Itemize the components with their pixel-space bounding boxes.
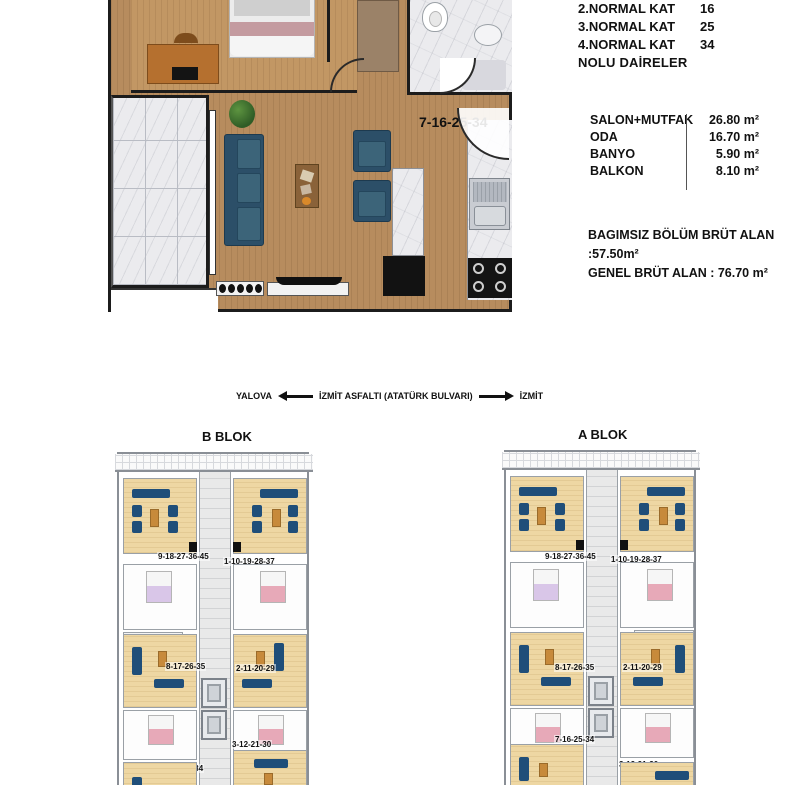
kitchen-island bbox=[392, 168, 424, 256]
hallway bbox=[399, 0, 407, 92]
kitchen-appliance bbox=[383, 256, 425, 296]
area-table: SALON+MUTFAK26.80 m² ODA16.70 m² BANYO5.… bbox=[590, 112, 790, 180]
stove-icon bbox=[468, 258, 512, 298]
living-room bbox=[233, 750, 307, 785]
bedroom-room bbox=[510, 562, 584, 628]
living-room bbox=[233, 478, 307, 554]
area-label: BALKON bbox=[590, 163, 685, 180]
unit-label: 3-12-21-30 bbox=[231, 740, 272, 749]
living-room bbox=[620, 476, 694, 552]
entry-door-arc bbox=[457, 108, 509, 160]
area-value: 16.70 m² bbox=[685, 129, 773, 146]
area-value: 8.10 m² bbox=[685, 163, 773, 180]
city-left: YALOVA bbox=[236, 391, 272, 401]
area-value: 5.90 m² bbox=[685, 146, 773, 163]
floor-value: 16 bbox=[700, 0, 714, 18]
wall bbox=[327, 0, 330, 62]
table-divider bbox=[686, 114, 687, 190]
unit-label: 2-11-20-29 bbox=[235, 664, 276, 673]
unit-label: 7-16-25-34 bbox=[554, 735, 595, 744]
unit-label: 9-18-27-36-45 bbox=[544, 552, 597, 561]
city-right: İZMİT bbox=[520, 391, 544, 401]
floor-label: 4.NORMAL KAT bbox=[578, 36, 700, 54]
unit-label: 8-17-26-35 bbox=[554, 663, 595, 672]
door-marker bbox=[620, 540, 628, 550]
bedroom-room bbox=[123, 564, 197, 630]
balcony-parapet bbox=[111, 288, 218, 312]
living-room bbox=[123, 762, 197, 785]
terrace bbox=[115, 454, 313, 472]
sofa bbox=[224, 134, 264, 246]
block-b-plan: 9-18-27-36-45 1-10-19-28-37 8-17-26-35 2… bbox=[117, 452, 309, 785]
armchair-1 bbox=[353, 130, 391, 172]
elevator bbox=[201, 678, 227, 708]
block-a-plan: 9-18-27-36-45 1-10-19-28-37 8-17-26-35 2… bbox=[504, 450, 696, 785]
balcony-window bbox=[209, 110, 216, 275]
area-value: 26.80 m² bbox=[685, 112, 773, 129]
unit-label: 8-17-26-35 bbox=[165, 662, 206, 671]
floor-value: 25 bbox=[700, 18, 714, 36]
bathroom bbox=[407, 0, 512, 95]
living-room bbox=[510, 744, 584, 785]
balcony bbox=[111, 95, 209, 288]
living-room bbox=[123, 634, 197, 708]
door-marker bbox=[233, 542, 241, 552]
desk-chair bbox=[174, 33, 198, 43]
floor-plan-sheet: 7-16-25-34 2.NORMAL KAT16 3.NORMAL KAT25… bbox=[0, 0, 805, 785]
bed-blanket bbox=[230, 22, 314, 36]
kitchen-sink-icon bbox=[469, 178, 510, 230]
bedroom-room bbox=[620, 708, 694, 758]
road-label: YALOVA İZMİT ASFALTI (ATATÜRK BULVARI) İ… bbox=[236, 388, 566, 404]
area-label: BANYO bbox=[590, 146, 685, 163]
block-b-title: B BLOK bbox=[202, 429, 252, 444]
living-room bbox=[123, 478, 197, 554]
unit-label: 9-18-27-36-45 bbox=[157, 552, 210, 561]
area-label: ODA bbox=[590, 129, 685, 146]
arrow-left-icon bbox=[278, 391, 313, 401]
sink-icon bbox=[474, 24, 502, 46]
shoe-rack bbox=[216, 281, 264, 296]
elevator bbox=[588, 676, 614, 706]
elevator bbox=[201, 710, 227, 740]
apartment-floor-plan: 7-16-25-34 bbox=[108, 0, 512, 312]
floor-label: 2.NORMAL KAT bbox=[578, 0, 700, 18]
gross-line-1: BAGIMSIZ BÖLÜM BRÜT ALAN :57.50m² bbox=[588, 226, 803, 264]
terrace bbox=[502, 452, 700, 470]
bedroom-room bbox=[233, 564, 307, 630]
armchair-2 bbox=[353, 180, 391, 222]
bedroom-room bbox=[620, 562, 694, 628]
elevator bbox=[588, 708, 614, 738]
floor-label: 3.NORMAL KAT bbox=[578, 18, 700, 36]
unit-label: 2-11-20-29 bbox=[622, 663, 663, 672]
living-room bbox=[510, 476, 584, 552]
tv-icon bbox=[276, 277, 342, 285]
door-marker bbox=[576, 540, 584, 550]
coffee-table bbox=[295, 164, 319, 208]
floor-suffix: NOLU DAİRELER bbox=[578, 54, 803, 72]
bed bbox=[229, 0, 315, 58]
plant-icon bbox=[229, 100, 255, 128]
road-name: İZMİT ASFALTI (ATATÜRK BULVARI) bbox=[319, 391, 473, 401]
tv-console bbox=[267, 282, 349, 296]
gross-area-summary: BAGIMSIZ BÖLÜM BRÜT ALAN :57.50m² GENEL … bbox=[588, 226, 803, 283]
wall bbox=[131, 90, 357, 93]
bedroom-room bbox=[123, 710, 197, 760]
block-a-title: A BLOK bbox=[578, 427, 627, 442]
floor-list: 2.NORMAL KAT16 3.NORMAL KAT25 4.NORMAL K… bbox=[578, 0, 803, 72]
area-label: SALON+MUTFAK bbox=[590, 112, 685, 129]
desk bbox=[147, 44, 219, 84]
bed-pillow bbox=[234, 0, 310, 16]
info-panel: 2.NORMAL KAT16 3.NORMAL KAT25 4.NORMAL K… bbox=[578, 0, 803, 260]
toilet-icon bbox=[422, 2, 448, 32]
floor-value: 34 bbox=[700, 36, 714, 54]
gross-line-2: GENEL BRÜT ALAN : 76.70 m² bbox=[588, 264, 803, 283]
arrow-right-icon bbox=[479, 391, 514, 401]
living-room bbox=[620, 762, 694, 785]
door-marker bbox=[189, 542, 197, 552]
laptop-icon bbox=[172, 67, 198, 80]
bed-foot bbox=[230, 36, 314, 56]
